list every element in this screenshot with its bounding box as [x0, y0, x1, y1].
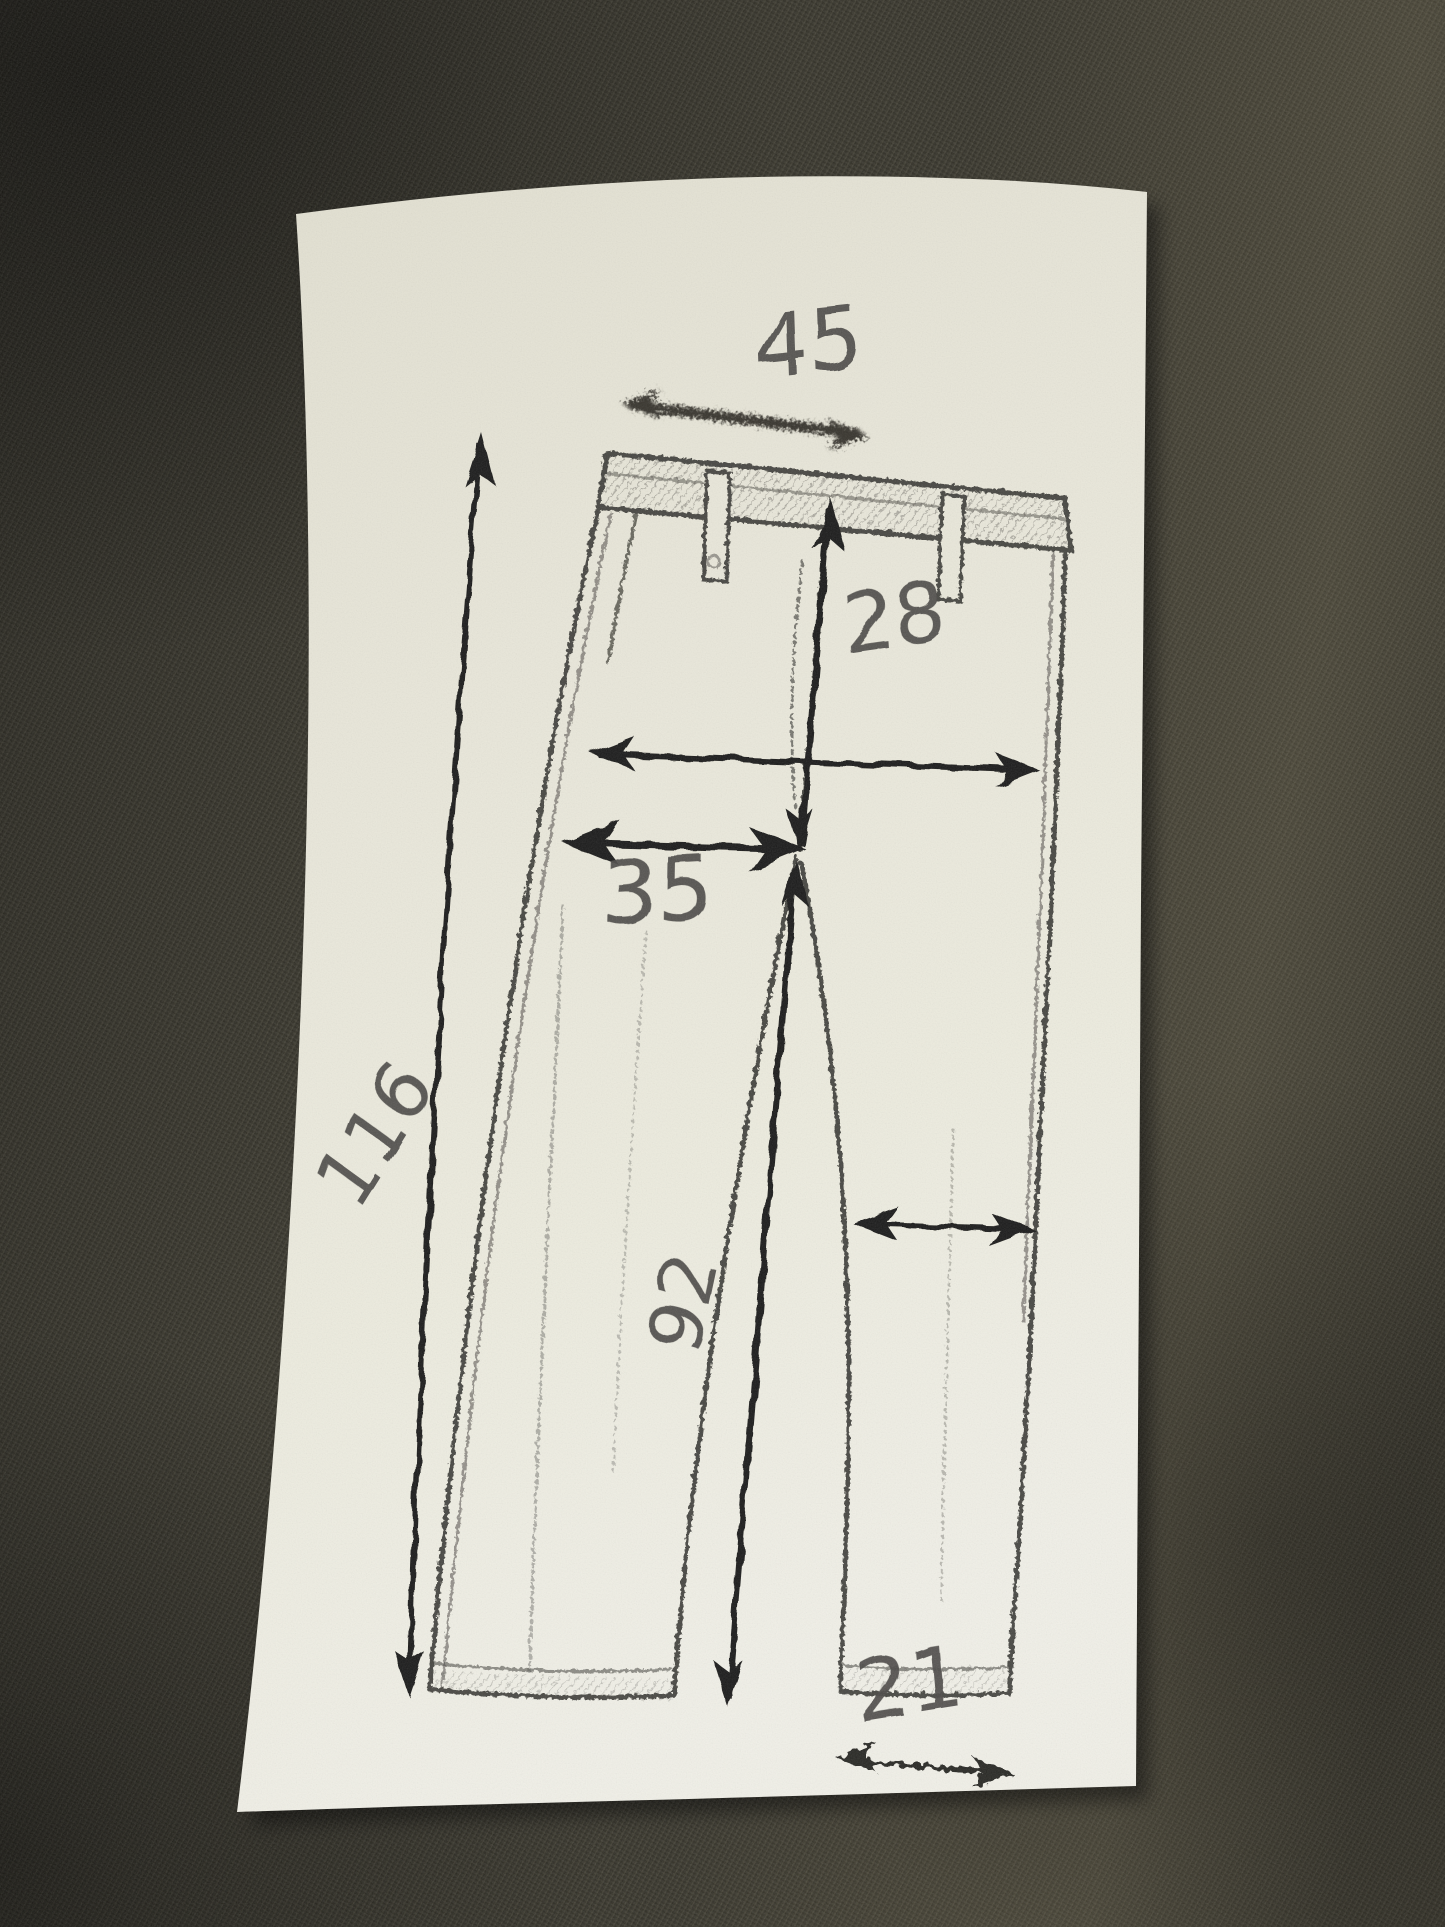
- photo-grain-overlay: [0, 0, 1445, 1927]
- photo-of-measurement-note: 45 28 35 116 92 21: [0, 0, 1445, 1927]
- measurement-sketch-svg: 45 28 35 116 92 21: [0, 0, 1445, 1927]
